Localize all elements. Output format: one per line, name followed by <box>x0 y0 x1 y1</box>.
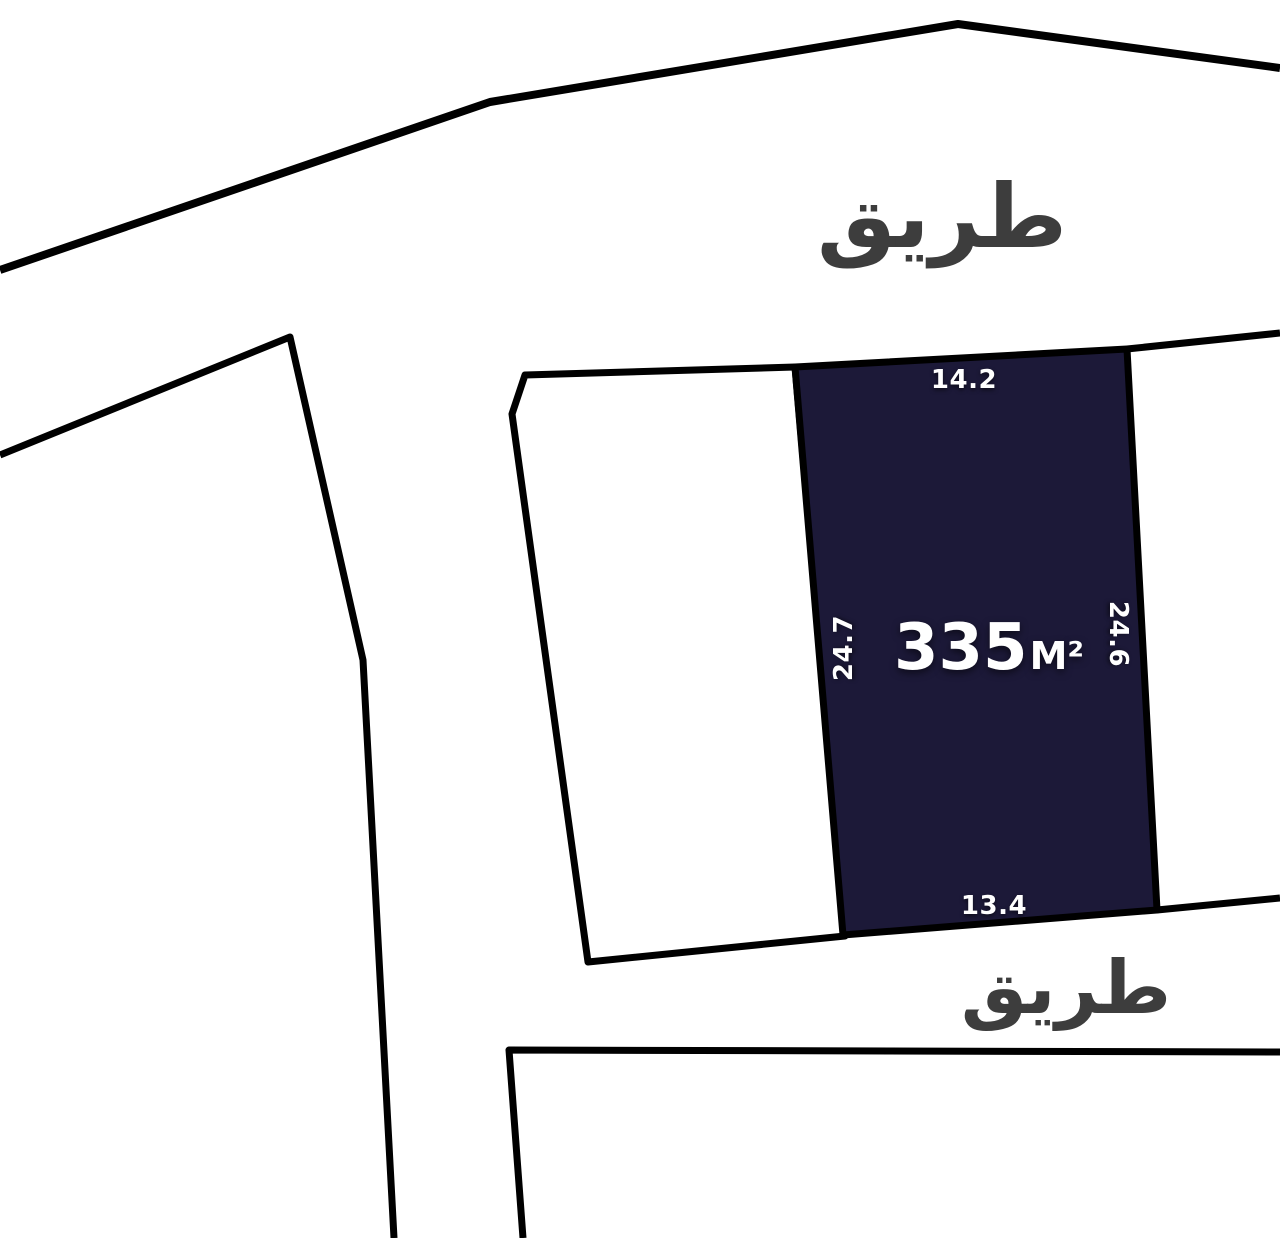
dimension-left: 24.7 <box>829 615 859 681</box>
top-road-label: طريق <box>817 173 1067 261</box>
area-value: 335 <box>894 616 1028 680</box>
right-boundary-top-line <box>1127 333 1280 349</box>
area-unit: M² <box>1030 637 1084 675</box>
dimension-right: 24.6 <box>1103 601 1133 667</box>
right-boundary-bottom-line <box>1157 898 1280 910</box>
left-parcel-outline <box>0 337 394 1238</box>
bottom-road-label: طريق <box>961 951 1171 1025</box>
top-road-boundary-line <box>0 24 1280 270</box>
middle-parcel-outline <box>512 367 845 962</box>
dimension-top: 14.2 <box>931 365 997 395</box>
parcel-area-label: 335 M² <box>894 616 1084 680</box>
plot-map-drawing <box>0 0 1280 1238</box>
bottom-parcel-outline <box>509 1050 1280 1238</box>
plot-map-canvas: طريق طريق 14.2 24.7 24.6 13.4 335 M² <box>0 0 1280 1238</box>
dimension-bottom: 13.4 <box>961 891 1027 921</box>
